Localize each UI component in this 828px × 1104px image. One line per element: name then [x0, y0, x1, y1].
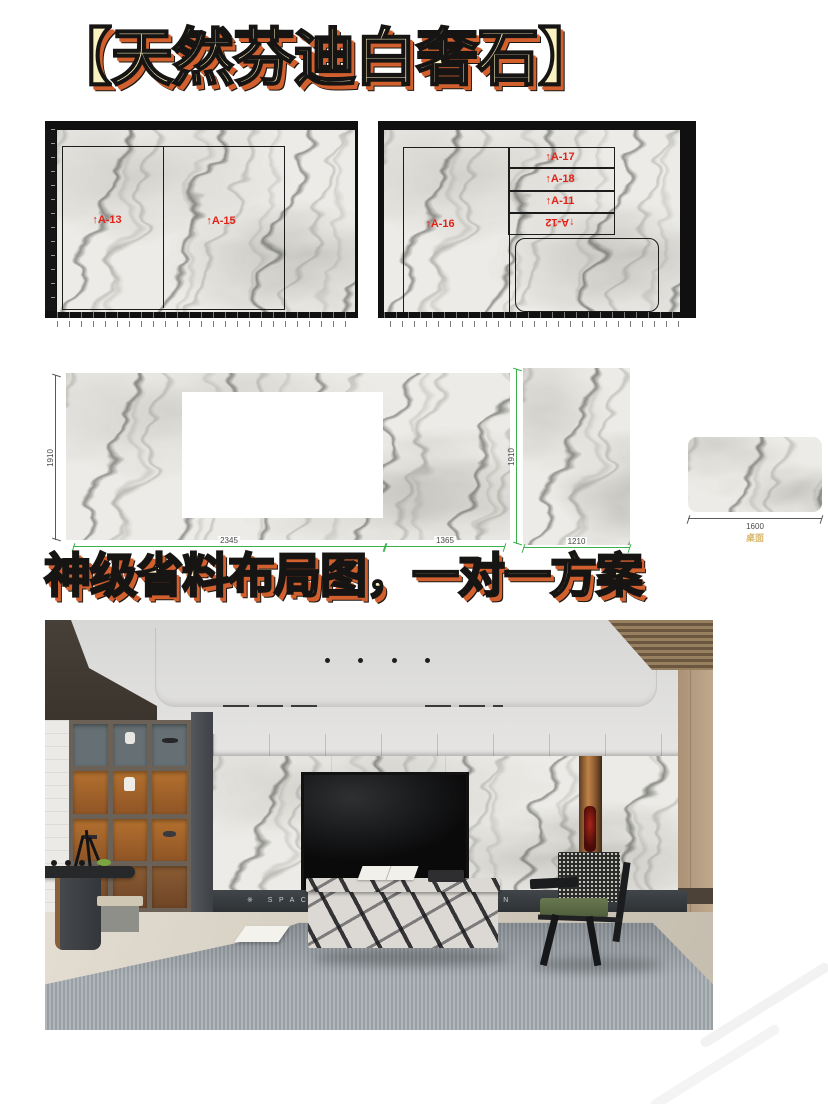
ruler-ticks: [51, 129, 55, 311]
shelf-cell: [73, 771, 108, 813]
slab-right-scale: [390, 321, 680, 327]
shelf-cell: [113, 724, 148, 766]
green-bowl: [97, 859, 111, 866]
tv-niche-cutout: [182, 392, 383, 518]
ceiling-tray: [155, 628, 657, 707]
ceiling-downlight: [325, 658, 330, 663]
dim-width-2345: 2345: [73, 546, 385, 547]
slab-layout-board-left: ↑A-13 ↑A-15: [45, 121, 358, 318]
tea-table-base: [55, 878, 101, 950]
decor-bowl: [162, 738, 178, 743]
side-panel-elevation: [523, 368, 630, 545]
tea-cup: [51, 860, 57, 866]
cut-label-a18: ↑A-18: [532, 173, 588, 185]
page-title: 【天然芬迪白奢石】: [50, 28, 599, 90]
tabletop-slab: [688, 437, 822, 512]
shelf-cell: [152, 724, 187, 766]
tv-wall-elevation: [66, 373, 510, 540]
ceiling-downlight: [425, 658, 430, 663]
open-book: [357, 866, 418, 880]
slab-left-ruler: [45, 129, 56, 311]
coffee-table: [308, 878, 498, 970]
ceiling-vent-slot: [425, 705, 503, 707]
marble-texture: [688, 437, 822, 512]
shelf-cell: [152, 819, 187, 861]
room-photo: ※ SPACE AESTHETICS DESIGN: [45, 620, 713, 1030]
slab-bottom-ruler: [384, 312, 680, 318]
tea-cup: [79, 860, 85, 866]
book-spine: [385, 866, 391, 880]
slab-bottom-ruler: [57, 312, 355, 318]
ceiling-downlight: [392, 658, 397, 663]
armchair: [530, 852, 655, 970]
decor-sculpture: [125, 732, 135, 744]
red-vase: [584, 806, 596, 852]
right-wall: [678, 670, 713, 912]
shelf-cell: [152, 771, 187, 813]
shelf-cell: [152, 866, 187, 908]
shelf-cell: [73, 724, 108, 766]
cut-label-a13: ↑A-13: [79, 214, 135, 226]
cut-divider: [163, 146, 164, 308]
tea-cup: [65, 860, 71, 866]
stone-stool: [101, 906, 139, 932]
stool-cushion: [97, 896, 143, 906]
ceiling-vent-slot: [223, 705, 320, 707]
decor-tray: [428, 870, 464, 882]
shelf-cell: [113, 819, 148, 861]
ceiling-downlight: [358, 658, 363, 663]
tabletop-caption: 桌面: [688, 531, 822, 544]
cut-label-a16: ↑A-16: [412, 218, 468, 230]
armchair-leg: [540, 914, 559, 966]
slab-left-scale: [57, 321, 353, 327]
cut-label-a12: ↑A-12: [532, 216, 588, 228]
cut-label-a17: ↑A-17: [532, 151, 588, 163]
decor-bowl: [163, 831, 176, 837]
cut-label-a11: ↑A-11: [532, 195, 588, 207]
dim-wall-height: 1910: [55, 375, 56, 540]
slab-photo: ↑A-16 ↑A-17 ↑A-18 ↑A-11 ↑A-12: [384, 130, 680, 312]
dim-tabletop-width: 1600: [688, 518, 822, 519]
cut-region-rounded: [515, 238, 659, 312]
wood-band: [213, 734, 713, 758]
tea-table-top: [45, 866, 135, 878]
armchair-leg: [586, 916, 602, 966]
dim-width-1365: 1365: [385, 546, 505, 547]
coffee-table-top-slab: [306, 878, 500, 892]
cut-label-a15: ↑A-15: [193, 215, 249, 227]
slab-photo: ↑A-13 ↑A-15: [57, 130, 355, 312]
dark-column: [191, 712, 213, 912]
marble-texture: [523, 368, 630, 545]
subtitle: 神级省料布局图，一对一方案: [44, 552, 642, 599]
coffee-table-body: [308, 890, 498, 948]
wall-seam: [690, 670, 691, 912]
shelf-cell: [113, 771, 148, 813]
dim-panel-height: 1910: [516, 369, 517, 544]
decor-vase: [124, 777, 135, 791]
slab-layout-board-right: ↑A-16 ↑A-17 ↑A-18 ↑A-11 ↑A-12: [378, 121, 696, 318]
cut-region-a13-a15: [62, 146, 285, 310]
poster-page: 【天然芬迪白奢石】 ↑A-13 ↑A-15 ↑A-16 ↑A-17 ↑A-18 …: [0, 0, 828, 1104]
dim-width-1210: 1210: [523, 547, 630, 548]
